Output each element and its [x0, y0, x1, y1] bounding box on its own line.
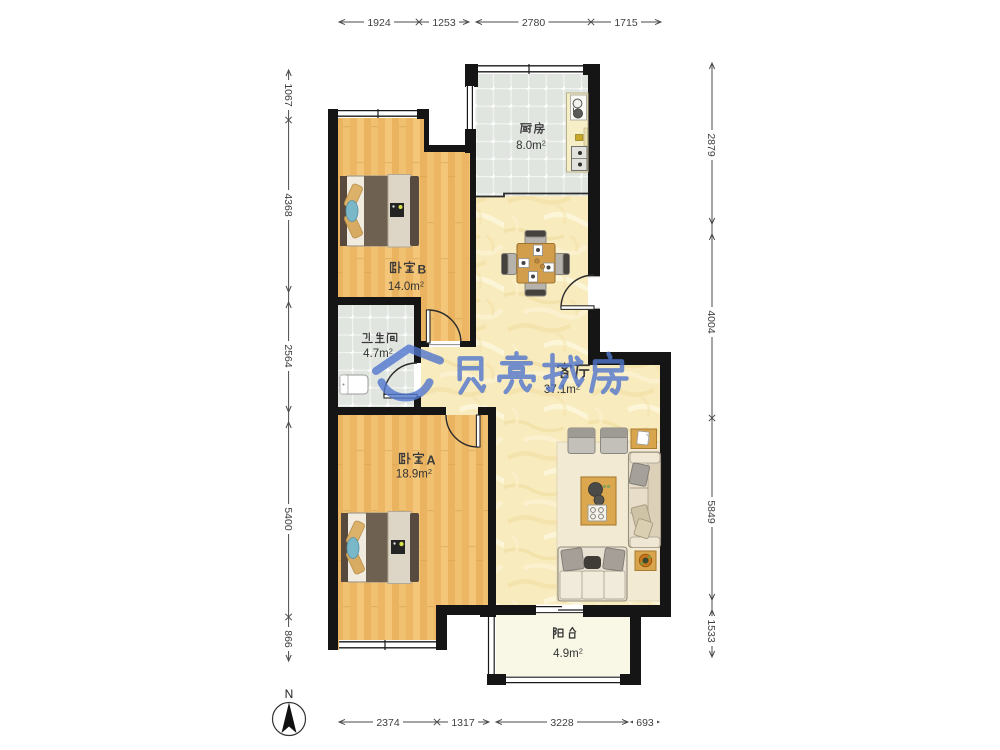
svg-text:1533: 1533 [705, 619, 717, 643]
svg-text:1715: 1715 [614, 17, 638, 29]
svg-text:693: 693 [636, 717, 654, 729]
svg-text:4368: 4368 [282, 193, 294, 217]
svg-text:5849: 5849 [705, 500, 717, 524]
svg-text:1253: 1253 [432, 17, 456, 29]
svg-text:1067: 1067 [282, 83, 294, 107]
svg-text:2564: 2564 [282, 344, 294, 368]
svg-text:N: N [285, 687, 294, 701]
svg-text:2879: 2879 [705, 133, 717, 157]
svg-text:4.9m2: 4.9m2 [553, 647, 583, 661]
svg-text:4004: 4004 [705, 310, 717, 334]
svg-text:3228: 3228 [550, 717, 574, 729]
svg-text:A: A [427, 454, 436, 468]
svg-text:14.0m2: 14.0m2 [388, 280, 424, 294]
svg-text:1317: 1317 [451, 717, 475, 729]
svg-text:2780: 2780 [522, 17, 546, 29]
svg-text:8.0m2: 8.0m2 [516, 139, 546, 153]
svg-text:B: B [418, 263, 427, 277]
svg-text:5400: 5400 [282, 507, 294, 531]
svg-text:2374: 2374 [376, 717, 400, 729]
svg-text:1924: 1924 [367, 17, 391, 29]
svg-text:866: 866 [282, 630, 294, 648]
svg-text:18.9m2: 18.9m2 [396, 467, 432, 481]
